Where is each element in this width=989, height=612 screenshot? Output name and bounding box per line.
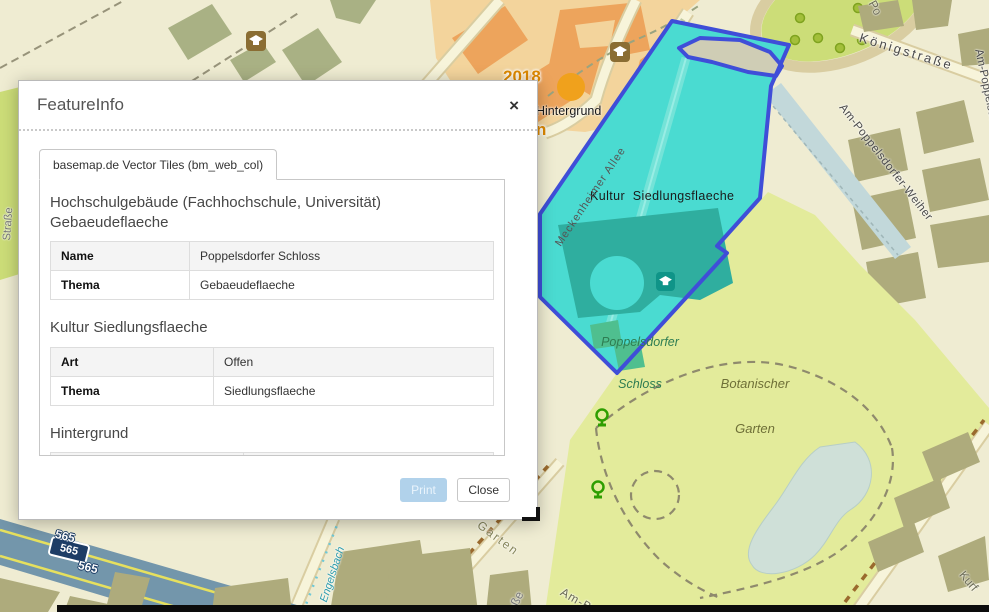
attr-label: Art xyxy=(51,347,214,376)
dialog-footer: Print Close xyxy=(400,478,510,502)
attr-label: Name xyxy=(51,242,190,271)
monument-icon[interactable] xyxy=(590,480,606,500)
section-heading-line2: Gebaeudeflaeche xyxy=(50,213,494,233)
dialog-header: FeatureInfo × xyxy=(19,81,537,131)
close-icon[interactable]: × xyxy=(509,97,519,114)
schloss-courtyard xyxy=(590,256,644,310)
attr-value: Siedlungsflaeche xyxy=(214,376,494,405)
close-button[interactable]: Close xyxy=(457,478,510,502)
tab-basemap-vector-tiles[interactable]: basemap.de Vector Tiles (bm_web_col) xyxy=(39,149,277,180)
table-row: Thema Gebaeudeflaeche xyxy=(51,271,494,300)
featureinfo-panel[interactable]: Hochschulgebäude (Fachhochschule, Univer… xyxy=(39,179,505,456)
attr-value: Gebaeudeflaeche xyxy=(190,271,494,300)
attribute-table: Art Offen Thema Siedlungsflaeche xyxy=(50,347,494,406)
table-row: Thema Hintergrund xyxy=(51,453,494,457)
attribute-table: Thema Hintergrund xyxy=(50,452,494,456)
dialog-title: FeatureInfo xyxy=(37,95,124,115)
university-icon[interactable] xyxy=(246,31,266,51)
featureinfo-dialog: FeatureInfo × basemap.de Vector Tiles (b… xyxy=(18,80,538,520)
print-button[interactable]: Print xyxy=(400,478,447,502)
attr-label: Thema xyxy=(51,376,214,405)
map-viewport[interactable]: 2018 Bonn Hintergrund Kultur Siedlungsfl… xyxy=(0,0,989,612)
table-row: Art Offen xyxy=(51,347,494,376)
attr-value: Poppelsdorfer Schloss xyxy=(190,242,494,271)
bottom-edge-bar xyxy=(57,605,989,612)
university-icon[interactable] xyxy=(656,272,675,291)
attr-label: Thema xyxy=(51,453,244,457)
tab-bar: basemap.de Vector Tiles (bm_web_col) Hoc… xyxy=(39,149,505,456)
tree xyxy=(791,36,800,45)
resize-grip[interactable] xyxy=(522,507,540,521)
section-heading: Hintergrund xyxy=(50,424,494,444)
table-row: Name Poppelsdorfer Schloss xyxy=(51,242,494,271)
tree xyxy=(796,14,805,23)
monument-icon[interactable] xyxy=(594,408,610,428)
table-row: Thema Siedlungsflaeche xyxy=(51,376,494,405)
tree xyxy=(814,34,823,43)
attr-label: Thema xyxy=(51,271,190,300)
section-heading: Kultur Siedlungsflaeche xyxy=(50,318,494,338)
section-heading: Hochschulgebäude (Fachhochschule, Univer… xyxy=(50,193,494,213)
tree xyxy=(836,44,845,53)
highlight-marker xyxy=(557,73,585,101)
university-icon[interactable] xyxy=(610,42,630,62)
attribute-table: Name Poppelsdorfer Schloss Thema Gebaeud… xyxy=(50,241,494,300)
attr-value: Offen xyxy=(214,347,494,376)
greenhouse xyxy=(590,320,622,349)
attr-value: Hintergrund xyxy=(244,453,494,457)
